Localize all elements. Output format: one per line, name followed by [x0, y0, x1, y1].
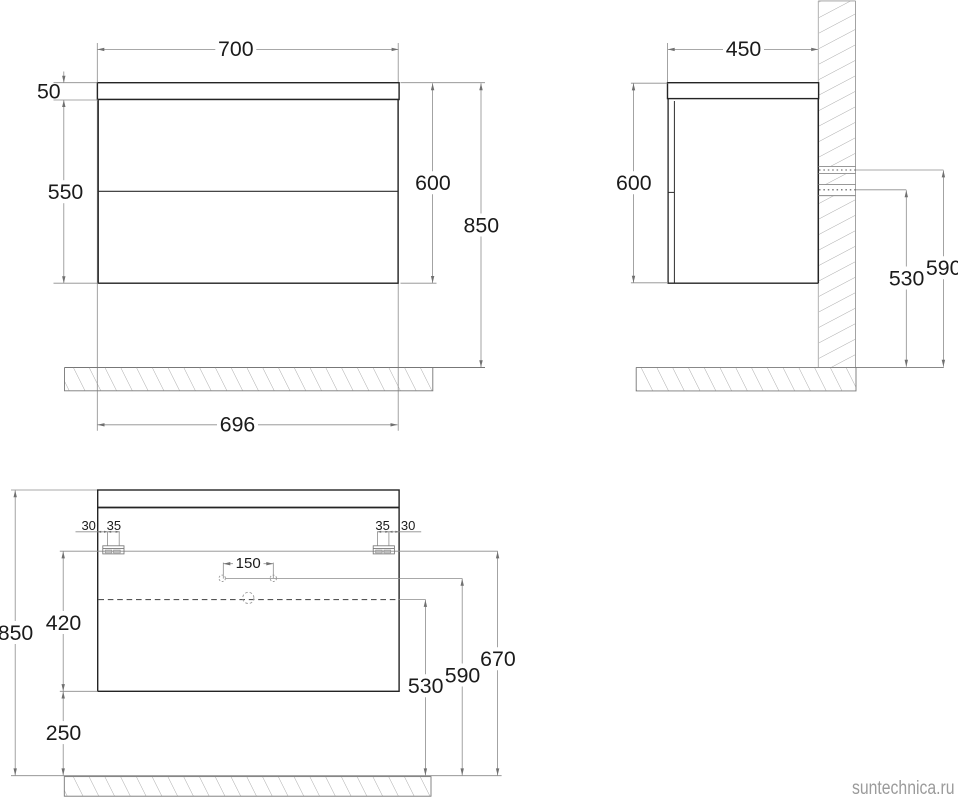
- svg-text:530: 530: [408, 674, 444, 698]
- svg-text:850: 850: [464, 213, 500, 237]
- svg-text:30: 30: [401, 518, 415, 533]
- svg-text:850: 850: [0, 621, 33, 645]
- svg-text:450: 450: [726, 37, 762, 61]
- svg-text:700: 700: [218, 37, 254, 61]
- svg-text:530: 530: [889, 266, 925, 290]
- svg-text:600: 600: [415, 171, 451, 195]
- svg-text:30: 30: [81, 518, 95, 533]
- svg-text:150: 150: [236, 555, 261, 572]
- svg-text:670: 670: [480, 647, 516, 671]
- svg-text:590: 590: [926, 256, 958, 280]
- svg-text:suntechnica.ru: suntechnica.ru: [852, 778, 955, 799]
- svg-text:590: 590: [445, 663, 481, 687]
- svg-text:35: 35: [107, 518, 121, 533]
- svg-text:696: 696: [220, 412, 256, 436]
- svg-text:600: 600: [616, 171, 652, 195]
- svg-text:420: 420: [46, 611, 82, 635]
- svg-text:50: 50: [37, 80, 61, 104]
- svg-text:250: 250: [46, 721, 82, 745]
- svg-text:550: 550: [48, 180, 84, 204]
- svg-text:35: 35: [375, 518, 389, 533]
